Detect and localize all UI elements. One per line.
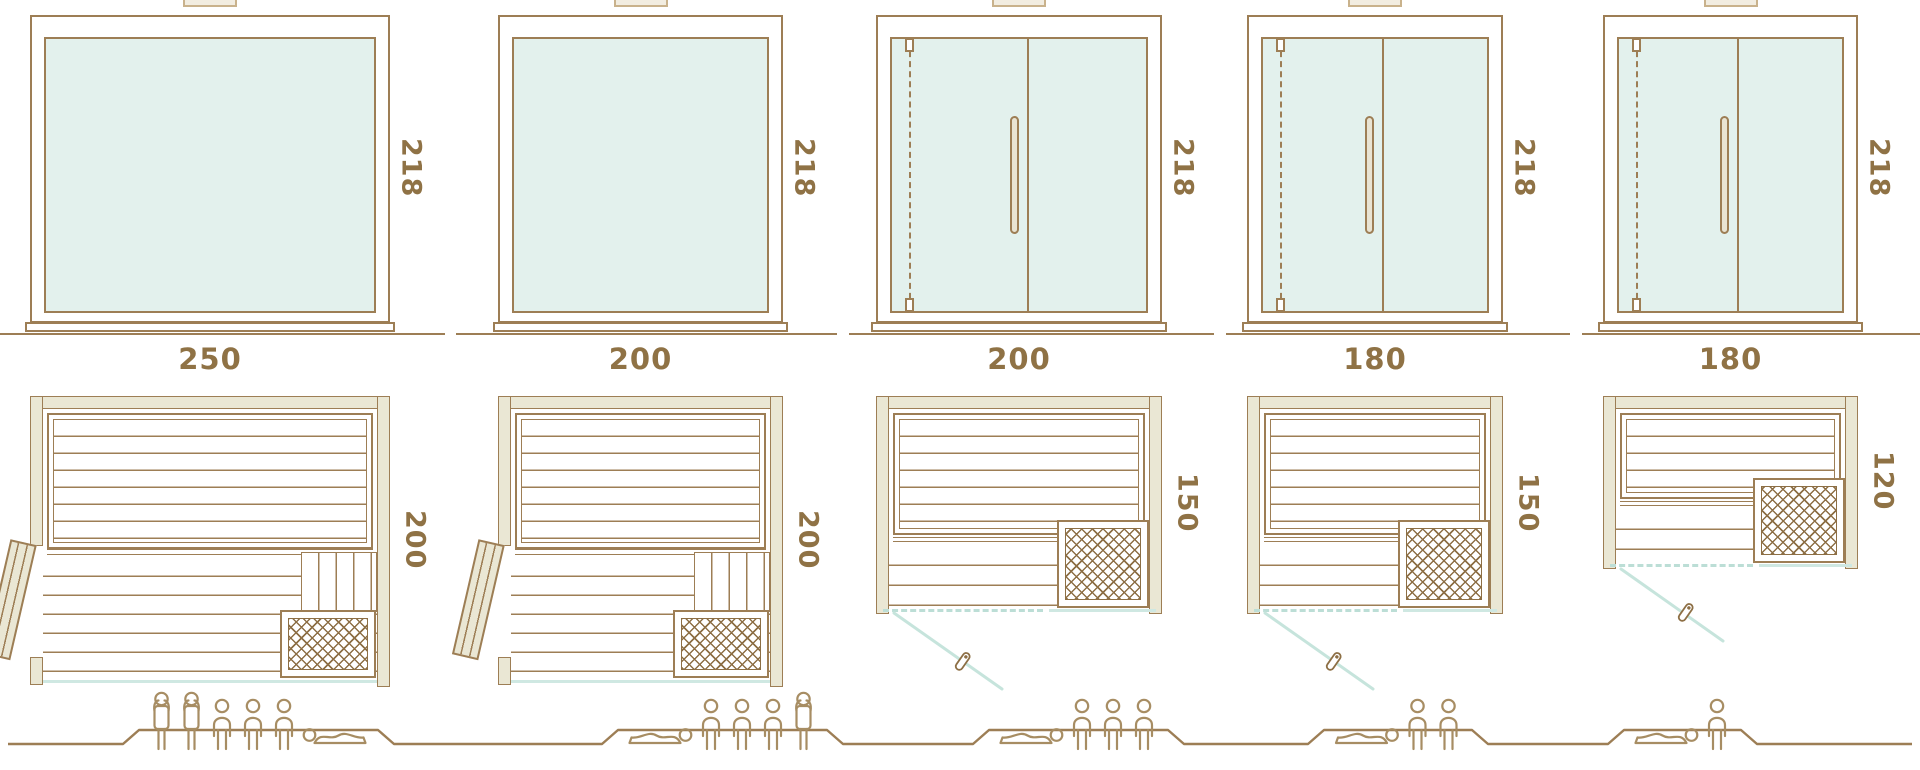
door-swing-line (894, 569, 1723, 689)
people-capacity-icons (0, 688, 1920, 770)
door-swing-overlay (0, 0, 1920, 770)
terrain-line (8, 730, 1912, 744)
door-handle-icon (954, 603, 1694, 672)
sauna-size-diagram: 250 218 200 200 218 (0, 0, 1920, 770)
